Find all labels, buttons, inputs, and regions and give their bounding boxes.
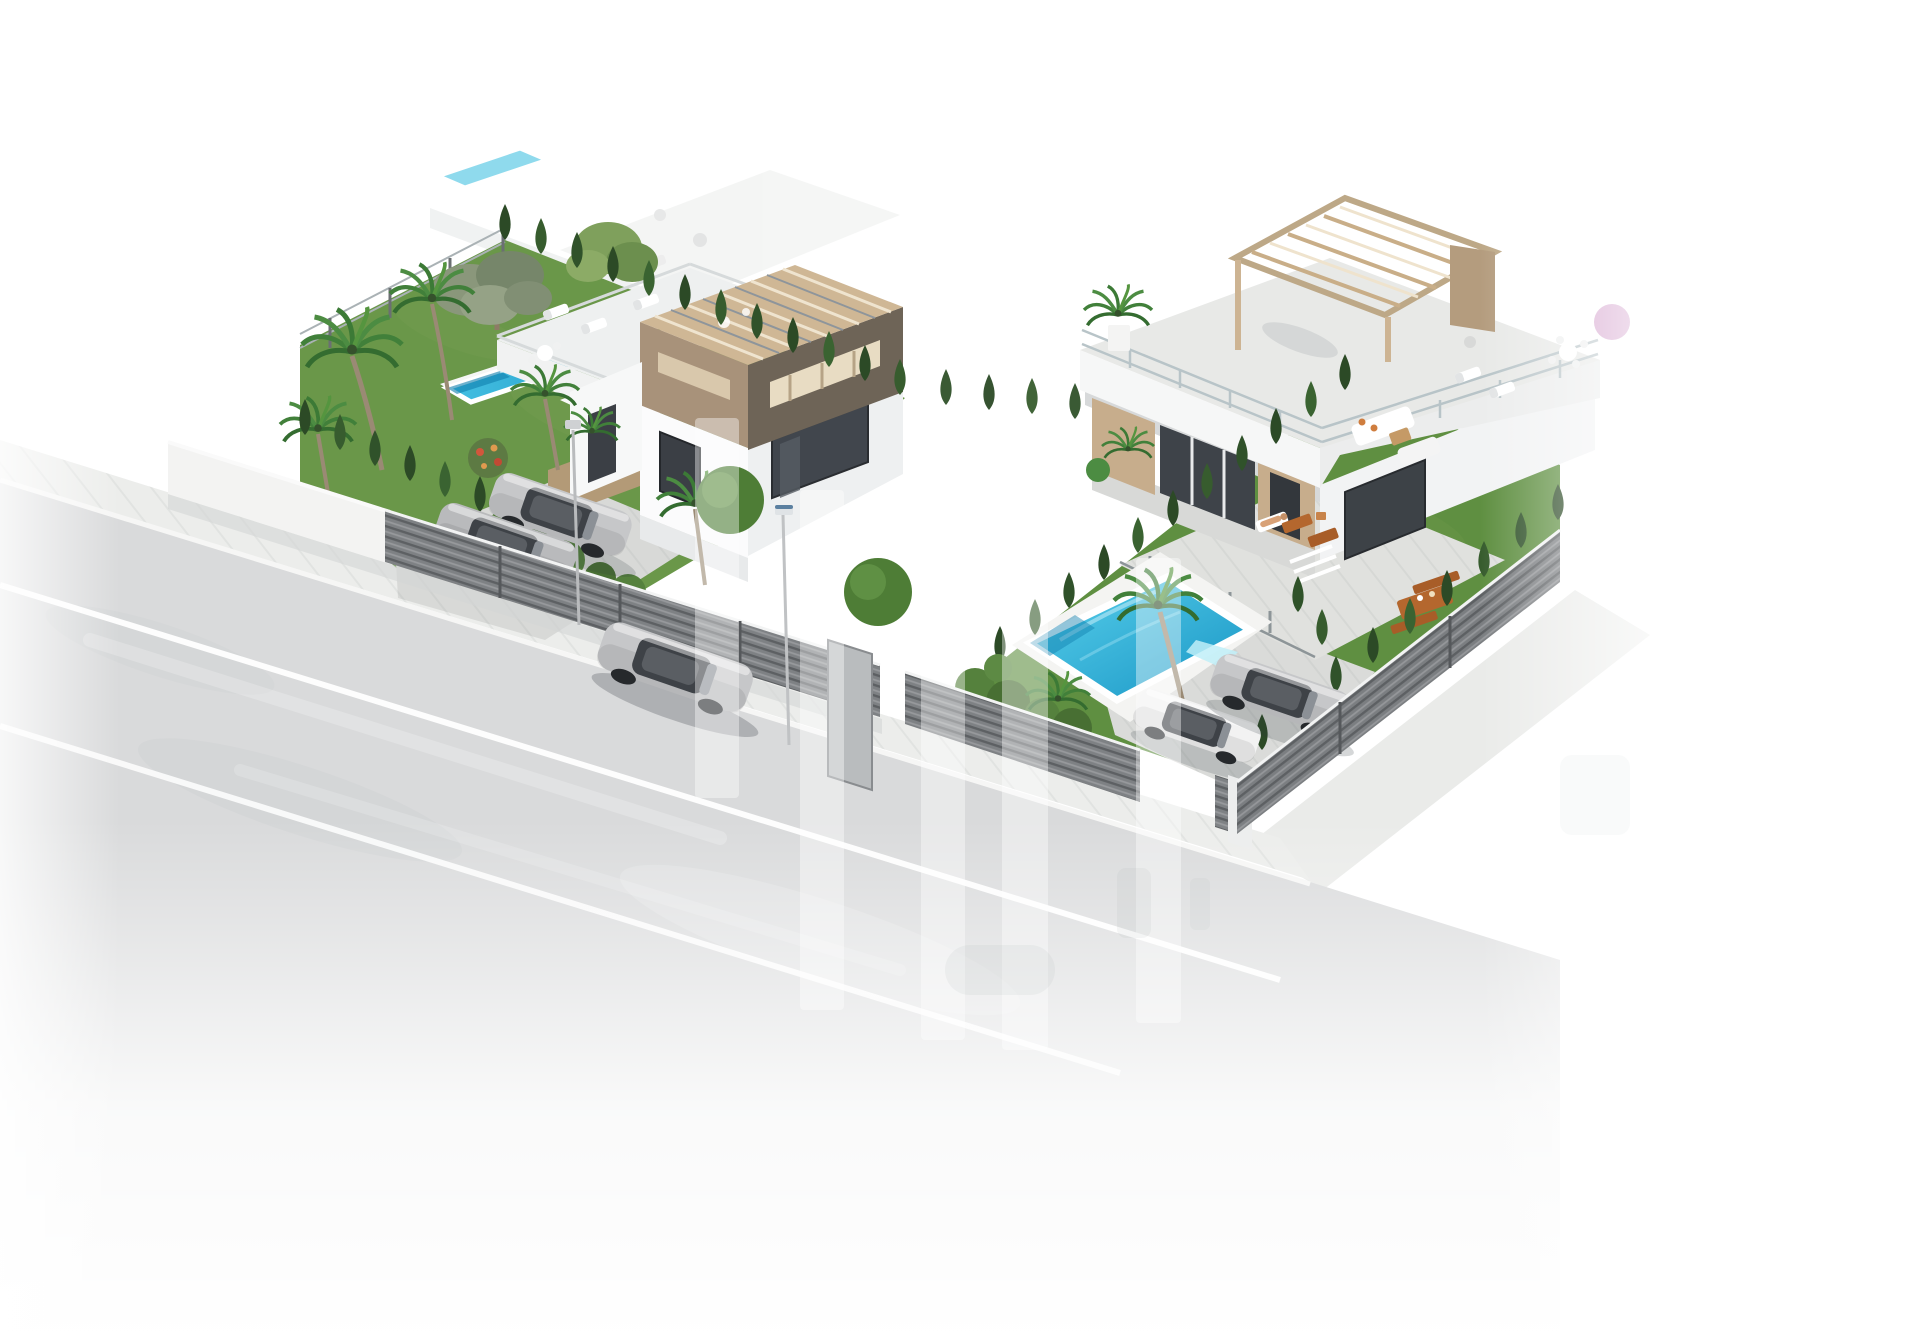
villa-render-scene — [0, 0, 1920, 1343]
watermark-bar — [1136, 558, 1181, 1023]
wing-door — [588, 404, 616, 483]
render-canvas — [0, 0, 1920, 1343]
flower-bush — [468, 438, 508, 478]
patio-table — [537, 345, 553, 361]
watermark-bar — [800, 490, 844, 1010]
fire-bowl — [1464, 336, 1476, 348]
side-table — [1316, 512, 1326, 520]
watermark-bar — [695, 418, 739, 798]
